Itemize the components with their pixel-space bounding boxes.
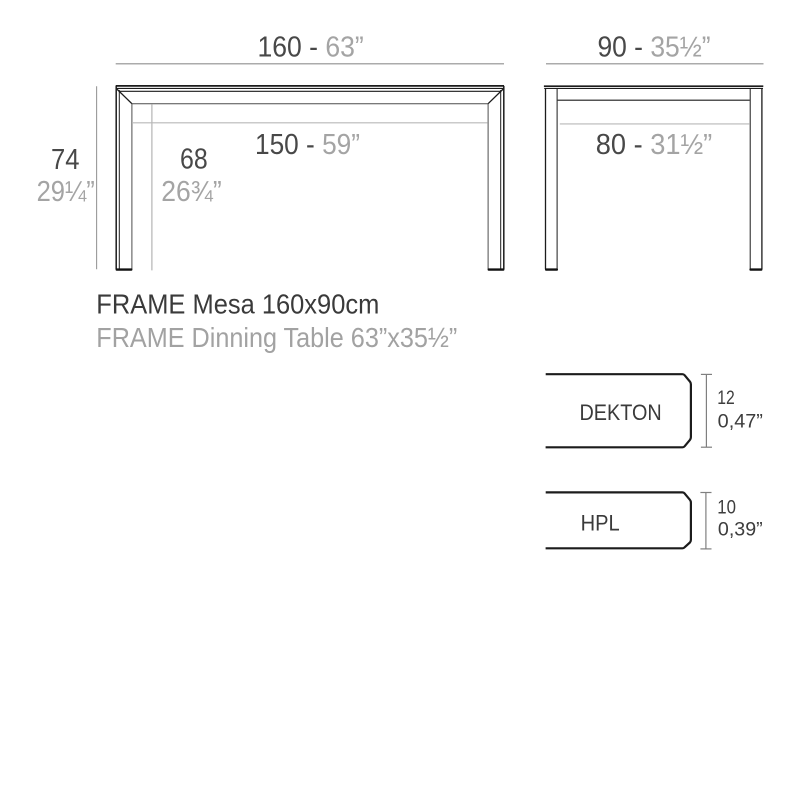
- svg-text:0,39”: 0,39”: [718, 520, 763, 541]
- svg-text:74: 74: [51, 144, 80, 176]
- svg-text:29¼”: 29¼”: [37, 176, 95, 208]
- svg-text:0,47”: 0,47”: [718, 411, 763, 432]
- svg-text:FRAME Mesa 160x90cm: FRAME Mesa 160x90cm: [96, 289, 379, 320]
- svg-text:150 - 59”: 150 - 59”: [255, 129, 360, 161]
- svg-text:90 - 35½”: 90 - 35½”: [597, 31, 710, 63]
- svg-text:DEKTON: DEKTON: [580, 400, 662, 425]
- svg-text:HPL: HPL: [581, 511, 620, 536]
- svg-text:26¾”: 26¾”: [161, 176, 221, 208]
- svg-text:160 - 63”: 160 - 63”: [257, 31, 363, 63]
- svg-text:FRAME Dinning Table 63”x35½”: FRAME Dinning Table 63”x35½”: [96, 322, 457, 353]
- svg-text:12: 12: [717, 388, 735, 409]
- svg-text:68: 68: [180, 144, 208, 176]
- svg-text:10: 10: [717, 497, 736, 518]
- svg-text:80 - 31½”: 80 - 31½”: [596, 129, 713, 161]
